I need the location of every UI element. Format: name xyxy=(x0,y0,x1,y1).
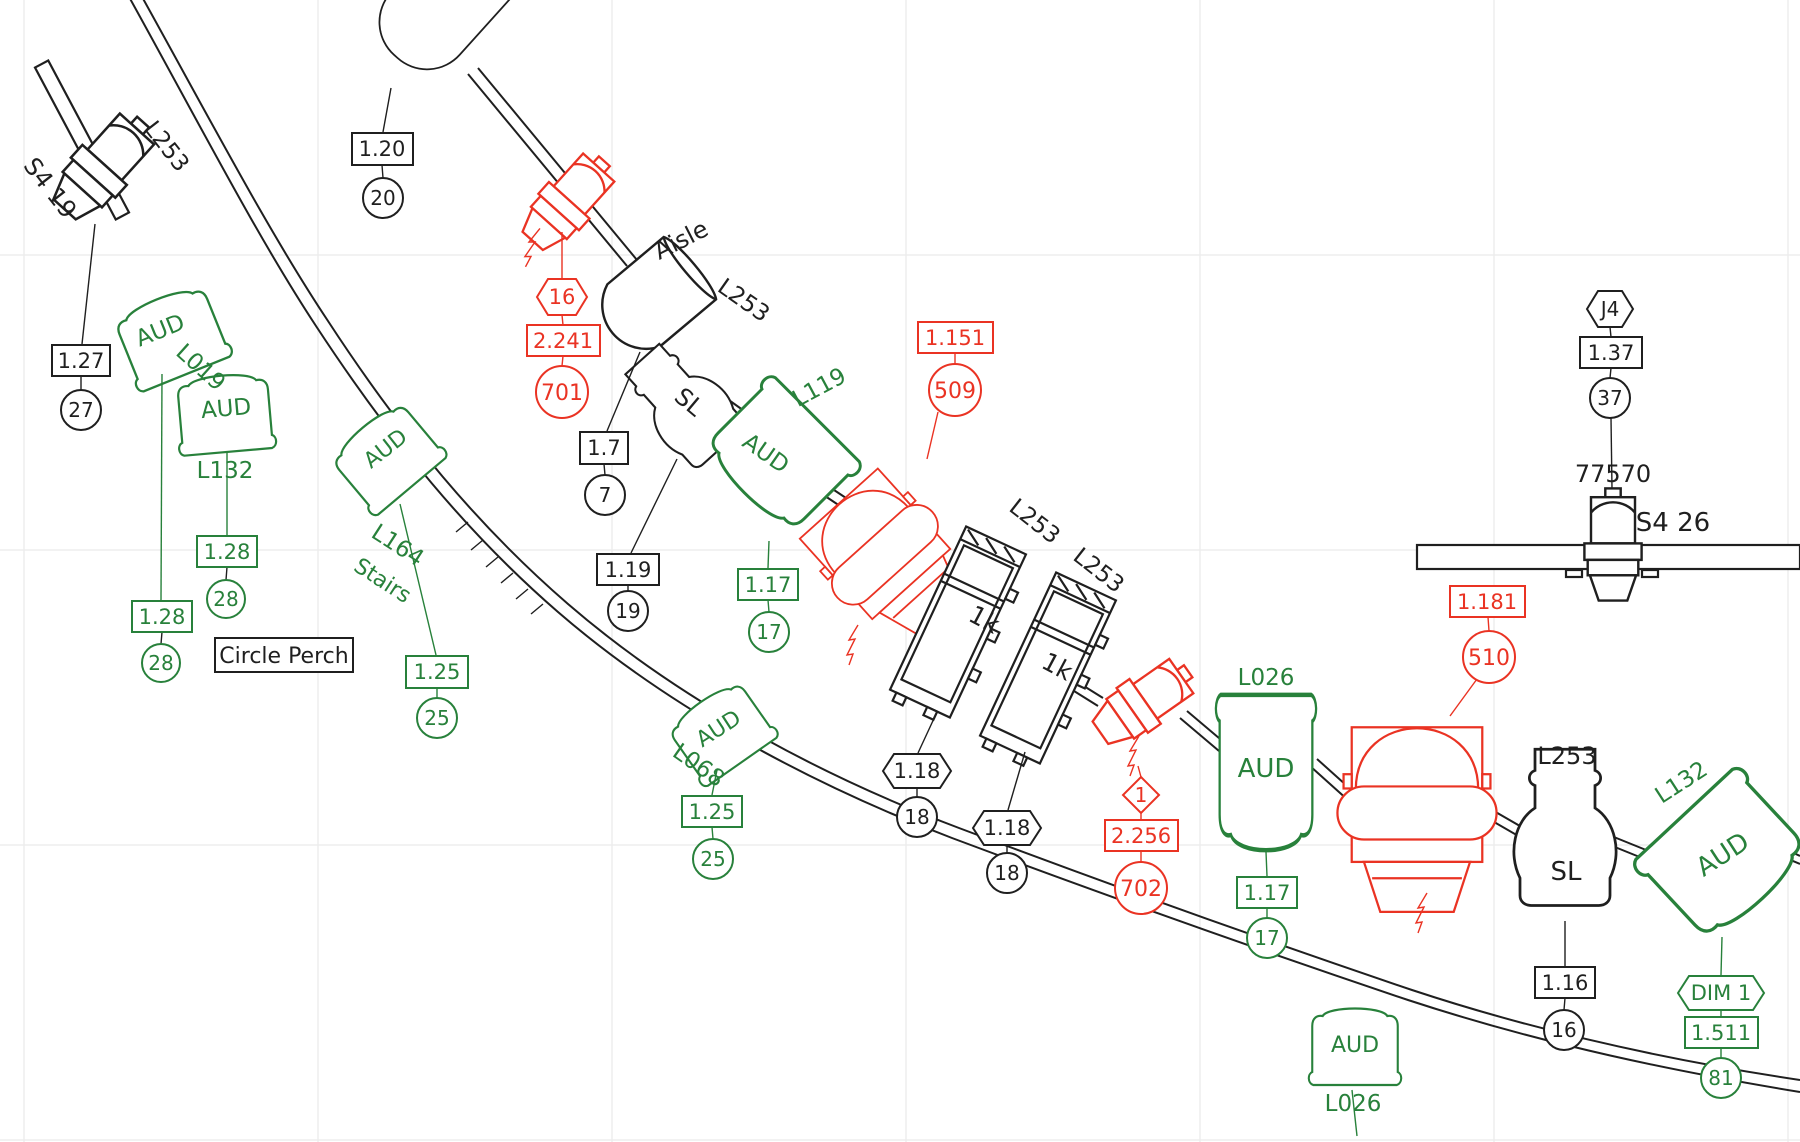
fixture-label: S4 26 xyxy=(1636,508,1710,538)
unit-value: 25 xyxy=(424,706,449,730)
pipe-clamp-icon xyxy=(1566,570,1582,577)
unit-value: 28 xyxy=(213,587,238,611)
unit-value: 17 xyxy=(1254,926,1279,950)
electric-bolt-icon xyxy=(1128,736,1139,776)
position-label: L026 xyxy=(1238,665,1295,691)
channel-value: 1.37 xyxy=(1588,341,1635,365)
unit-value: 19 xyxy=(615,599,640,623)
unit-number-label: 77570 xyxy=(1575,460,1651,488)
channel-value: 1.511 xyxy=(1691,1021,1751,1045)
gel-label: L253 xyxy=(1004,494,1065,549)
channel-value: 1.16 xyxy=(1542,971,1589,995)
channel-value: 1.28 xyxy=(139,605,186,629)
unit-value: 25 xyxy=(700,847,725,871)
dimmer-value: 16 xyxy=(549,285,576,309)
unit-value: 16 xyxy=(1551,1018,1576,1042)
fixture-aisle-wash xyxy=(586,233,720,364)
channel-value: 2.256 xyxy=(1111,824,1171,848)
channel-value: 2.241 xyxy=(533,329,593,353)
fixture-type-label: SL xyxy=(1551,857,1583,887)
unit-value: 510 xyxy=(1468,646,1510,671)
unit-value: 20 xyxy=(370,186,395,210)
dimmer-value: 1 xyxy=(1135,783,1148,807)
dimmer-value: DIM 1 xyxy=(1691,981,1752,1005)
channel-value: 1.151 xyxy=(925,326,985,350)
fixture-red-702 xyxy=(1085,649,1204,755)
fixture-mover-510 xyxy=(1337,727,1496,912)
position-label: L026 xyxy=(1325,1091,1382,1117)
channel-value: 1.25 xyxy=(414,660,461,684)
channel-value: 1.7 xyxy=(587,436,620,460)
position-label: L119 xyxy=(788,363,850,413)
stairs-hatch xyxy=(456,522,543,614)
channel-value: 1.28 xyxy=(204,540,251,564)
jack-value: J4 xyxy=(1599,297,1620,321)
lighting-plot-canvas: 1.27 27 1.28 28 1.28 28 1.20 20 16 2.241… xyxy=(0,0,1800,1142)
unit-value: 509 xyxy=(934,379,976,404)
position-label: L132 xyxy=(197,458,254,484)
fixture-s4-26 xyxy=(1584,488,1641,600)
unit-value: 81 xyxy=(1708,1066,1733,1090)
unit-value: 28 xyxy=(148,651,173,675)
fixture-type-label: AUD xyxy=(200,394,252,424)
pipe-clamp-icon xyxy=(1642,570,1658,577)
fixture-type-label: AUD xyxy=(1331,1033,1379,1058)
channel-value: 1.17 xyxy=(745,573,792,597)
gel-label: L253 xyxy=(1537,742,1596,770)
gel-label: L253 xyxy=(713,274,774,328)
unit-value: 7 xyxy=(599,483,612,507)
channel-value: 1.17 xyxy=(1244,881,1291,905)
unit-value: 18 xyxy=(994,861,1019,885)
channel-value: 1.18 xyxy=(894,759,941,783)
channel-value: 1.19 xyxy=(605,558,652,582)
channel-value: 1.27 xyxy=(58,349,105,373)
unit-value: 701 xyxy=(541,381,583,406)
channel-value: 1.20 xyxy=(359,137,406,161)
unit-value: 702 xyxy=(1120,877,1162,902)
unit-value: 17 xyxy=(756,620,781,644)
circle-perch-annotation: Circle Perch xyxy=(215,638,353,672)
channel-value: 1.25 xyxy=(689,800,736,824)
annotation-text: Circle Perch xyxy=(219,644,348,669)
unit-value: 27 xyxy=(68,398,93,422)
plot-drawing: 1.27 27 1.28 28 1.28 28 1.20 20 16 2.241… xyxy=(0,0,1800,1142)
followspot-blob xyxy=(361,0,542,87)
unit-value: 37 xyxy=(1597,386,1622,410)
channel-value: 1.181 xyxy=(1457,590,1517,614)
fixture-type-label: AUD xyxy=(1238,754,1295,784)
channel-value: 1.18 xyxy=(984,816,1031,840)
unit-value: 18 xyxy=(904,805,929,829)
electric-bolt-icon xyxy=(847,625,858,665)
